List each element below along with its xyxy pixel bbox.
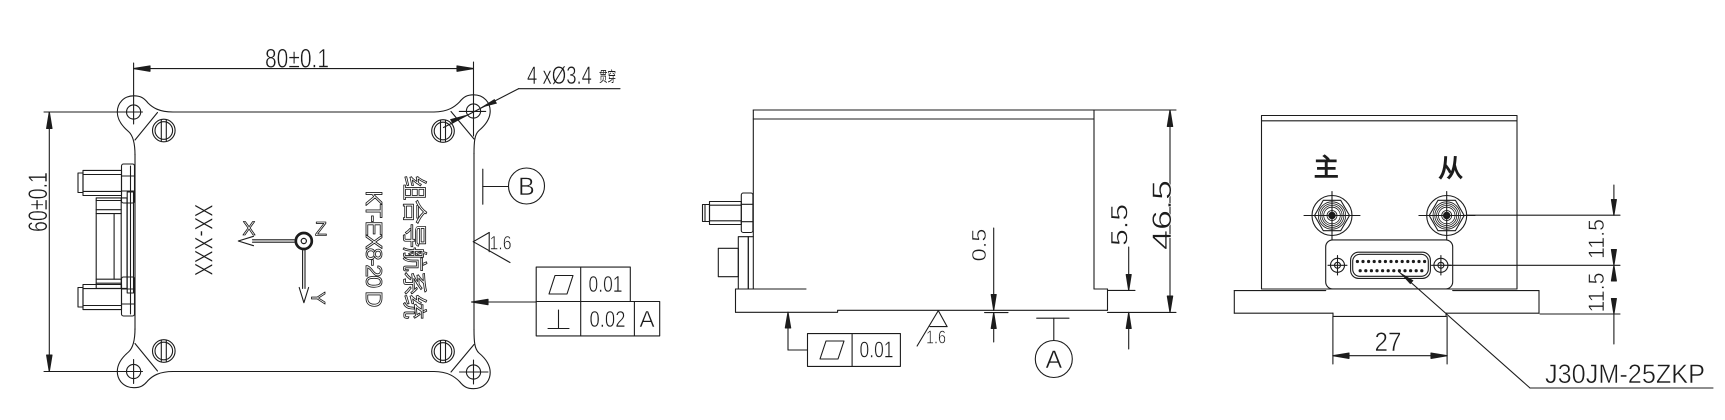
svg-text:80±0.1: 80±0.1 (265, 44, 329, 74)
svg-text:0.5: 0.5 (969, 229, 991, 262)
svg-text:从: 从 (1438, 155, 1463, 183)
svg-text:11.5: 11.5 (1584, 219, 1609, 259)
svg-text:11.5: 11.5 (1584, 273, 1609, 313)
svg-text:46.5: 46.5 (1147, 180, 1177, 250)
svg-text:0.02: 0.02 (590, 306, 626, 332)
svg-text:X: X (242, 218, 255, 240)
svg-text:0.01: 0.01 (860, 337, 894, 363)
svg-text:XX-XXX: XX-XXX (189, 204, 217, 276)
svg-text:组合导航系统: 组合导航系统 (400, 176, 428, 320)
svg-text:5.5: 5.5 (1107, 204, 1134, 246)
svg-text:主: 主 (1314, 154, 1339, 182)
svg-text:Y: Y (306, 291, 328, 304)
svg-text:J30JM-25ZKP: J30JM-25ZKP (1545, 359, 1705, 389)
svg-text:B: B (518, 173, 535, 201)
svg-text:KT-EX8-20 D: KT-EX8-20 D (361, 191, 387, 308)
svg-text:4 xØ3.4: 4 xØ3.4 (527, 62, 592, 90)
svg-text:1.6: 1.6 (490, 234, 512, 255)
svg-text:0.01: 0.01 (589, 271, 623, 297)
svg-text:A: A (1045, 346, 1062, 374)
svg-text:60±0.1: 60±0.1 (23, 172, 53, 232)
svg-text:Z: Z (315, 218, 327, 240)
svg-text:27: 27 (1375, 327, 1402, 357)
svg-text:A: A (639, 306, 655, 332)
svg-text:1.6: 1.6 (926, 328, 946, 348)
svg-text:贯穿: 贯穿 (599, 69, 616, 86)
